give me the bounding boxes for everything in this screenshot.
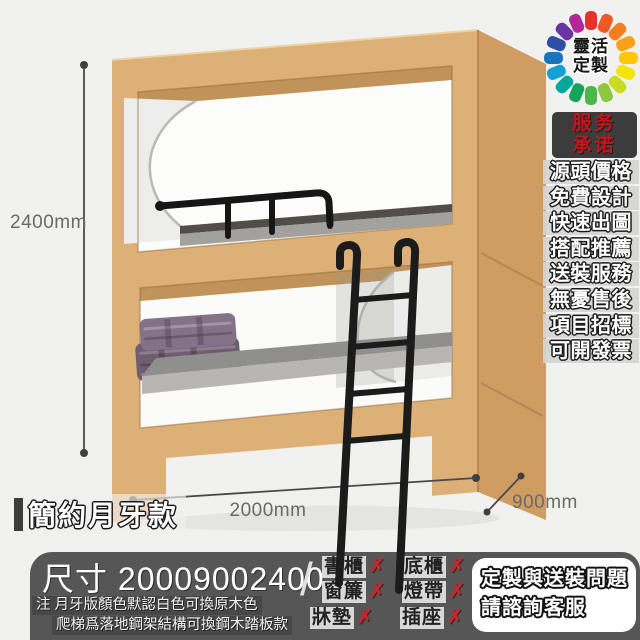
crescent-cutout-lower — [358, 272, 396, 382]
service-item: 免費設計 — [543, 186, 639, 210]
service-item: 快速出圖 — [543, 211, 639, 235]
dimension-lines — [80, 61, 525, 516]
guard-rail — [160, 193, 330, 234]
service-item: 送裝服務 — [543, 262, 639, 286]
length-dimension-label: 2000mm — [228, 500, 308, 522]
style-name-label: 簡約月牙款 — [14, 494, 186, 534]
service-item: 可開發票 — [543, 339, 639, 363]
lower-mattress — [142, 332, 452, 376]
cta-line2: 請諮詢客服 — [481, 594, 636, 623]
service-item: 項目招標 — [543, 314, 639, 338]
style-name-text: 簡約月牙款 — [28, 494, 178, 534]
height-dimension-label: 2400mm — [10, 212, 87, 234]
option-curtain: 窗簾 ✗ — [322, 580, 385, 603]
option-base-cabinet: 底櫃 ✗ — [402, 555, 465, 578]
label-accent-bar — [14, 498, 23, 531]
option-socket: 插座 ✗ — [400, 606, 463, 629]
note-ladder: 爬梯爲落地鋼架結構可換鋼木踏板款 — [52, 616, 292, 635]
excluded-x-icon: ✗ — [449, 555, 465, 578]
note-color: 注 月牙版顏色默認白色可換原木色 — [32, 596, 262, 615]
ladder — [339, 242, 415, 590]
brand-logo: 靈活 定製 — [542, 2, 640, 110]
bed-front-frame — [112, 30, 478, 522]
divider-slash: / — [300, 552, 313, 606]
badge-line2: 承诺 — [552, 135, 637, 157]
bottom-info-bar: 尺寸 20009002400 注 月牙版顏色默認白色可換原木色 爬梯爲落地鋼架結… — [30, 552, 640, 640]
customer-service-cta[interactable]: 定製與送裝問題 請諮詢客服 — [472, 558, 636, 632]
service-promise-badge: 服务 承诺 — [552, 112, 637, 158]
service-item: 源頭價格 — [543, 160, 639, 184]
upper-mattress — [180, 204, 452, 234]
excluded-x-icon: ✗ — [369, 580, 385, 603]
cta-line1: 定製與送裝問題 — [481, 565, 636, 594]
excluded-x-icon: ✗ — [357, 606, 373, 629]
logo-text: 靈活 定製 — [542, 37, 640, 75]
excluded-x-icon: ✗ — [447, 606, 463, 629]
size-spec-text: 尺寸 20009002400 — [42, 554, 325, 600]
crescent-cutout-upper — [150, 101, 198, 238]
service-item: 無憂售後 — [543, 288, 639, 312]
depth-dimension-label: 900mm — [512, 492, 578, 514]
folded-blankets — [135, 313, 241, 382]
service-item: 搭配推薦 — [543, 237, 639, 261]
bed-side-panel — [478, 30, 546, 520]
option-mattress: 牀墊 ✗ — [310, 606, 373, 629]
option-light-strip: 燈帶 ✗ — [402, 580, 465, 603]
upper-back-panel — [138, 80, 452, 252]
product-image: 2400mm 2000mm 900mm 簡約月牙款 靈活 定製 服务 承诺 源頭… — [0, 0, 640, 640]
service-list: 源頭價格 免費設計 快速出圖 搭配推薦 送裝服務 無憂售後 項目招標 可開發票 — [543, 160, 639, 365]
excluded-x-icon: ✗ — [449, 580, 465, 603]
excluded-x-icon: ✗ — [369, 555, 385, 578]
badge-line1: 服务 — [552, 113, 637, 135]
lower-back-panel — [140, 275, 452, 428]
option-bookcase: 書櫃 ✗ — [322, 555, 385, 578]
